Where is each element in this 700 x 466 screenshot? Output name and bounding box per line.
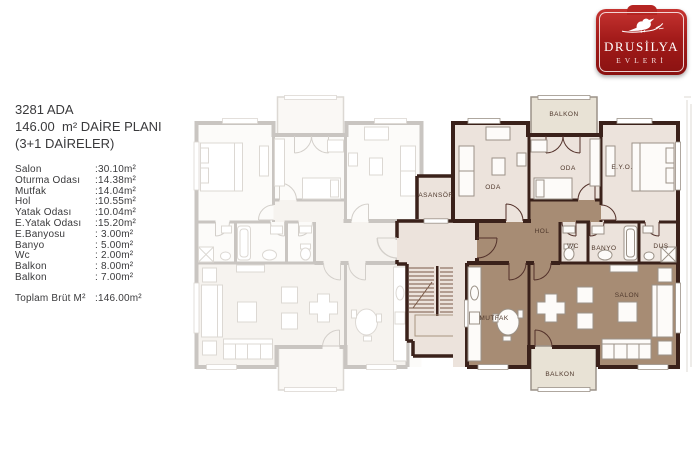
room-label-eyo: E.Y.O. bbox=[611, 164, 632, 171]
room-label-salon: SALON bbox=[615, 292, 640, 299]
elevator-door bbox=[424, 219, 448, 223]
left-floor-plan bbox=[194, 96, 422, 392]
room-label-hol: HOL bbox=[535, 228, 550, 235]
neighbour-outline bbox=[684, 97, 691, 372]
floor-plan-sheet: 3281 ADA 146.00 m² DAİRE PLANI (3+1 DAİR… bbox=[0, 0, 700, 466]
room-label-balkon-top: BALKON bbox=[549, 111, 578, 118]
room-label-asansor: ASANSÖR bbox=[418, 191, 453, 199]
room-label-dus: DUŞ bbox=[653, 243, 668, 250]
room-label-mutfak: MUTFAK bbox=[479, 315, 509, 322]
floor-plan-svg: BALKON ODA ODA E.Y.O. ASANSÖR HOL WC BAN… bbox=[0, 0, 700, 466]
room-label-balkon-bottom: BALKON bbox=[545, 371, 574, 378]
room-label-oda-left: ODA bbox=[485, 184, 501, 191]
room-label-banyo: BANYO bbox=[591, 245, 616, 252]
room-label-oda-mid: ODA bbox=[560, 165, 576, 172]
room-label-wc: WC bbox=[567, 243, 579, 250]
